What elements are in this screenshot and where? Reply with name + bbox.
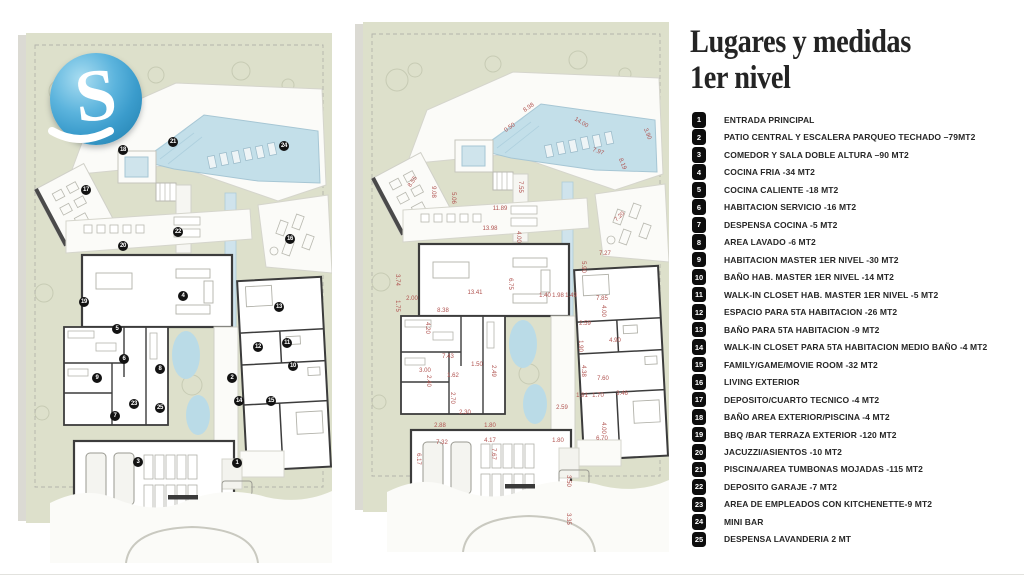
- logo-tail-icon: [40, 51, 144, 155]
- dimension-label: 6.70: [596, 436, 608, 442]
- dimension-label: 13.41: [467, 290, 482, 296]
- legend-item: 24MINI BAR: [692, 514, 1018, 530]
- legend-number-badge: 23: [692, 497, 706, 513]
- legend-label: DESPENSA LAVANDERIA 2 MT: [724, 534, 851, 544]
- dimension-label: 8.38: [437, 308, 449, 314]
- legend-label: ENTRADA PRINCIPAL: [724, 115, 814, 125]
- dimension-label: 11.89: [493, 206, 508, 212]
- panel-edge-strip: [355, 24, 363, 510]
- dimension-label: 2.49: [490, 365, 496, 377]
- dimension-label: 1.50: [471, 362, 483, 368]
- legend-item: 17DEPOSITO/CUARTO TECNICO -4 MT2: [692, 392, 1018, 408]
- plan-marker: 14: [234, 396, 244, 406]
- plan-marker: 23: [129, 399, 139, 409]
- legend-number-badge: 9: [692, 252, 706, 268]
- dimension-label: 9.08: [430, 186, 436, 198]
- legend-label: DESPENSA COCINA -5 MT2: [724, 220, 838, 230]
- legend-label: BAÑO HAB. MASTER 1ER NIVEL -14 MT2: [724, 272, 894, 282]
- title-line-2: 1er nivel: [690, 60, 790, 96]
- dimension-label: 4.00: [600, 422, 606, 434]
- legend-number-badge: 24: [692, 514, 706, 530]
- page-title: Lugares y medidas1er nivel: [690, 24, 911, 96]
- legend-number-badge: 18: [692, 409, 706, 425]
- plan-marker: 10: [288, 361, 298, 371]
- legend-item: 2PATIO CENTRAL Y ESCALERA PARQUEO TECHAD…: [692, 129, 1018, 145]
- plan-marker: 3: [133, 457, 143, 467]
- legend-number-badge: 1: [692, 112, 706, 128]
- legend-label: HABITACION MASTER 1ER NIVEL -30 MT2: [724, 255, 899, 265]
- legend-item: 11WALK-IN CLOSET HAB. MASTER 1ER NIVEL -…: [692, 287, 1018, 303]
- dimension-label: 7.85: [596, 296, 608, 302]
- legend-number-badge: 8: [692, 234, 706, 250]
- bottom-divider: [0, 574, 1024, 575]
- slide: 1234567891011121314151617181920212223242…: [0, 0, 1024, 576]
- legend-list: 1ENTRADA PRINCIPAL2PATIO CENTRAL Y ESCAL…: [692, 112, 1018, 547]
- legend-label: AREA DE EMPLEADOS CON KITCHENETTE-9 MT2: [724, 499, 932, 509]
- floor-plan-left: 1234567891011121314151617181920212223242…: [26, 33, 332, 563]
- dimension-label: 1.70: [592, 393, 604, 399]
- plan-marker: 21: [168, 137, 178, 147]
- legend-item: 4COCINA FRIA -34 MT2: [692, 164, 1018, 180]
- dimension-label: 2.88: [434, 423, 446, 429]
- title-line-1: Lugares y medidas: [690, 24, 911, 60]
- dimension-label: 7.55: [517, 181, 523, 193]
- legend-number-badge: 15: [692, 357, 706, 373]
- dimension-label: 1.40: [539, 293, 551, 299]
- legend-number-badge: 4: [692, 164, 706, 180]
- plan-marker: 11: [282, 338, 292, 348]
- legend-label: WALK-IN CLOSET PARA 5TA HABITACION MEDIO…: [724, 342, 987, 352]
- legend-number-badge: 19: [692, 427, 706, 443]
- plan-marker: 25: [155, 403, 165, 413]
- legend-number-badge: 16: [692, 374, 706, 390]
- dimension-label: 3.35: [565, 513, 571, 525]
- dimension-label: 7.32: [436, 440, 448, 446]
- dimension-label: 7.43: [442, 354, 454, 360]
- legend-item: 18BAÑO AREA EXTERIOR/PISCINA -4 MT2: [692, 409, 1018, 425]
- legend-label: PISCINA/AREA TUMBONAS MOJADAS -115 MT2: [724, 464, 923, 474]
- plan-marker: 16: [285, 234, 295, 244]
- dimension-label: 1.62: [447, 373, 459, 379]
- legend-number-badge: 5: [692, 182, 706, 198]
- legend-label: BAÑO PARA 5TA HABITACION -9 MT2: [724, 325, 879, 335]
- legend-item: 6HABITACION SERVICIO -16 MT2: [692, 199, 1018, 215]
- legend-number-badge: 12: [692, 304, 706, 320]
- dimension-label: 4.17: [484, 438, 496, 444]
- panel-edge-strip: [18, 35, 26, 521]
- dimension-label: 1.49: [565, 293, 577, 299]
- legend-label: HABITACION SERVICIO -16 MT2: [724, 202, 856, 212]
- dimension-label: 1.80: [552, 438, 564, 444]
- plan-marker: 22: [173, 227, 183, 237]
- legend-item: 25DESPENSA LAVANDERIA 2 MT: [692, 532, 1018, 548]
- legend-item: 3COMEDOR Y SALA DOBLE ALTURA –90 MT2: [692, 147, 1018, 163]
- legend-label: AREA LAVADO -6 MT2: [724, 237, 816, 247]
- legend-item: 13BAÑO PARA 5TA HABITACION -9 MT2: [692, 322, 1018, 338]
- plan-marker: 15: [266, 396, 276, 406]
- legend-item: 10BAÑO HAB. MASTER 1ER NIVEL -14 MT2: [692, 269, 1018, 285]
- dimension-label: 1.98: [552, 293, 564, 299]
- dimension-label: 1.90: [577, 340, 583, 352]
- legend-label: COCINA FRIA -34 MT2: [724, 167, 815, 177]
- legend-label: DEPOSITO GARAJE -7 MT2: [724, 482, 837, 492]
- legend-item: 21PISCINA/AREA TUMBONAS MOJADAS -115 MT2: [692, 462, 1018, 478]
- dimension-label: 6.75: [507, 278, 513, 290]
- dimension-label: 5.90: [580, 261, 586, 273]
- legend-number-badge: 20: [692, 444, 706, 460]
- dimension-label: 2.40: [425, 375, 431, 387]
- legend-number-badge: 6: [692, 199, 706, 215]
- legend-number-badge: 11: [692, 287, 706, 303]
- dimension-label: 7.67: [490, 448, 496, 460]
- legend-item: 7DESPENSA COCINA -5 MT2: [692, 217, 1018, 233]
- plan-marker: 9: [92, 373, 102, 383]
- dimension-label: 3.50: [565, 475, 571, 487]
- legend-label: COMEDOR Y SALA DOBLE ALTURA –90 MT2: [724, 150, 909, 160]
- plan-marker: 4: [178, 291, 188, 301]
- dimension-label: 4.20: [424, 322, 430, 334]
- legend: 1ENTRADA PRINCIPAL2PATIO CENTRAL Y ESCAL…: [692, 112, 1018, 549]
- legend-number-badge: 13: [692, 322, 706, 338]
- dimension-label: 2.70: [449, 392, 455, 404]
- legend-item: 9HABITACION MASTER 1ER NIVEL -30 MT2: [692, 252, 1018, 268]
- floor-plan-right: 8.980.5014.003.907.978.198.559.085.067.5…: [363, 22, 669, 552]
- legend-number-badge: 7: [692, 217, 706, 233]
- legend-number-badge: 17: [692, 392, 706, 408]
- legend-item: 16LIVING EXTERIOR: [692, 374, 1018, 390]
- plan-marker: 13: [274, 302, 284, 312]
- legend-label: FAMILY/GAME/MOVIE ROOM -32 MT2: [724, 360, 878, 370]
- plan-marker: 5: [112, 324, 122, 334]
- dimension-label: 4.90: [609, 338, 621, 344]
- legend-item: 5COCINA CALIENTE -18 MT2: [692, 182, 1018, 198]
- dimension-label: 1.75: [394, 300, 400, 312]
- legend-label: ESPACIO PARA 5TA HABITACION -26 MT2: [724, 307, 897, 317]
- legend-number-badge: 14: [692, 339, 706, 355]
- dimension-label: 1.80: [484, 423, 496, 429]
- legend-item: 14WALK-IN CLOSET PARA 5TA HABITACION MED…: [692, 339, 1018, 355]
- plan-marker: 20: [118, 241, 128, 251]
- plan-marker: 1: [232, 458, 242, 468]
- dimension-label: 13.98: [482, 226, 497, 232]
- dimension-label: 4.00: [515, 231, 521, 243]
- legend-label: MINI BAR: [724, 517, 764, 527]
- legend-item: 23AREA DE EMPLEADOS CON KITCHENETTE-9 MT…: [692, 497, 1018, 513]
- plan-marker: 7: [110, 411, 120, 421]
- legend-label: DEPOSITO/CUARTO TECNICO -4 MT2: [724, 395, 879, 405]
- plan-marker: 8: [155, 364, 165, 374]
- plan-marker: 12: [253, 342, 263, 352]
- plan-marker: 6: [119, 354, 129, 364]
- legend-label: COCINA CALIENTE -18 MT2: [724, 185, 838, 195]
- legend-item: 22DEPOSITO GARAJE -7 MT2: [692, 479, 1018, 495]
- legend-label: BAÑO AREA EXTERIOR/PISCINA -4 MT2: [724, 412, 890, 422]
- legend-item: 20JACUZZI/ASIENTOS -10 MT2: [692, 444, 1018, 460]
- dimension-label: 7.60: [597, 376, 609, 382]
- legend-label: BBQ /BAR TERRAZA EXTERIOR -120 MT2: [724, 430, 897, 440]
- legend-label: WALK-IN CLOSET HAB. MASTER 1ER NIVEL -5 …: [724, 290, 938, 300]
- legend-label: JACUZZI/ASIENTOS -10 MT2: [724, 447, 842, 457]
- dimension-label: 3.00: [419, 368, 431, 374]
- legend-item: 8AREA LAVADO -6 MT2: [692, 234, 1018, 250]
- legend-item: 1ENTRADA PRINCIPAL: [692, 112, 1018, 128]
- dimension-label: 3.46: [616, 391, 628, 397]
- dimension-label: 5.06: [450, 192, 456, 204]
- dimension-label: 6.17: [415, 453, 421, 465]
- plan-marker: 24: [279, 141, 289, 151]
- legend-number-badge: 2: [692, 129, 706, 145]
- legend-label: PATIO CENTRAL Y ESCALERA PARQUEO TECHADO…: [724, 132, 975, 142]
- dimension-label: 2.30: [459, 410, 471, 416]
- dimension-label: 2.59: [579, 321, 591, 327]
- legend-number-badge: 21: [692, 462, 706, 478]
- plan-marker: 19: [79, 297, 89, 307]
- legend-number-badge: 22: [692, 479, 706, 495]
- logo: S: [40, 51, 144, 155]
- dimension-label: 4.00: [600, 305, 606, 317]
- legend-item: 19BBQ /BAR TERRAZA EXTERIOR -120 MT2: [692, 427, 1018, 443]
- dimension-label: 3.74: [394, 274, 400, 286]
- dimension-label: 4.38: [580, 365, 586, 377]
- dimension-label: 7.27: [599, 251, 611, 257]
- legend-number-badge: 25: [692, 532, 706, 548]
- legend-number-badge: 10: [692, 269, 706, 285]
- legend-number-badge: 3: [692, 147, 706, 163]
- plan-marker: 17: [81, 185, 91, 195]
- dimension-label: 1.91: [576, 393, 588, 399]
- legend-item: 12ESPACIO PARA 5TA HABITACION -26 MT2: [692, 304, 1018, 320]
- legend-item: 15FAMILY/GAME/MOVIE ROOM -32 MT2: [692, 357, 1018, 373]
- legend-label: LIVING EXTERIOR: [724, 377, 800, 387]
- dimension-label: 2.59: [556, 405, 568, 411]
- plan-marker: 2: [227, 373, 237, 383]
- floor-plan-drawing: [363, 22, 669, 552]
- dimension-label: 2.00: [406, 296, 418, 302]
